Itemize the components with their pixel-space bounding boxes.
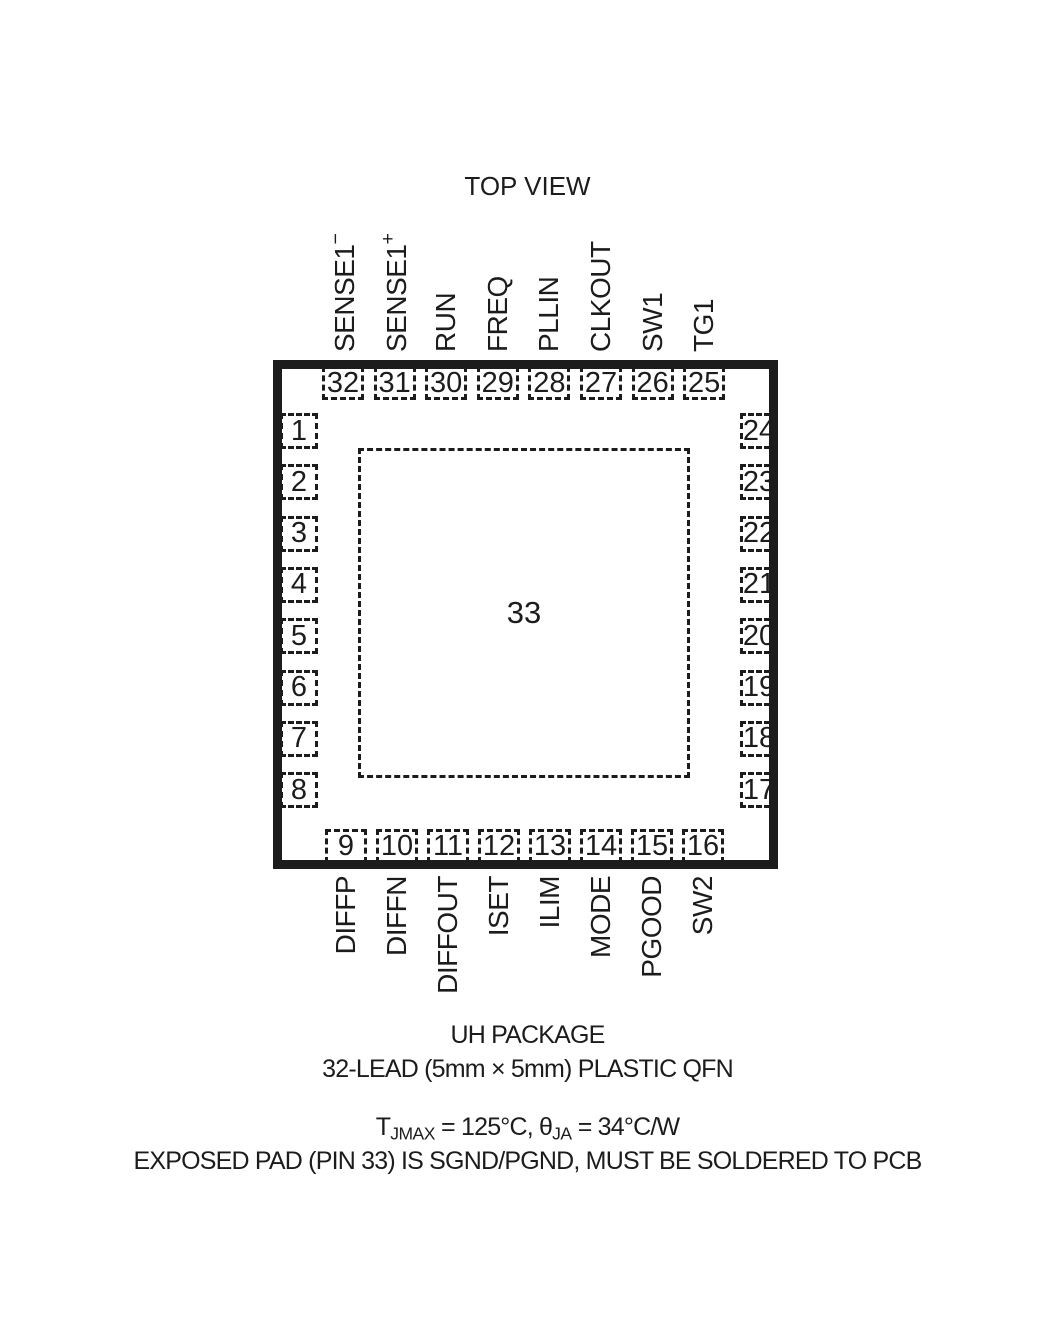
pin-number: 16 bbox=[687, 832, 719, 861]
pin-number: 30 bbox=[430, 369, 462, 398]
pin-pad-1: 1 bbox=[280, 413, 318, 449]
pin-number: 19 bbox=[743, 673, 775, 702]
pin-pad-10: 10 bbox=[376, 829, 418, 863]
pin-label-wrap-30: RUN bbox=[430, 293, 462, 352]
pin-pad-30: 30 bbox=[425, 366, 467, 400]
pin-number: 17 bbox=[743, 776, 775, 805]
pin-pad-27: 27 bbox=[580, 366, 622, 400]
pin-pad-15: 15 bbox=[631, 829, 673, 863]
pin-label-wrap-14: MODE bbox=[585, 876, 617, 958]
pin-label-28: PLLIN bbox=[533, 277, 565, 352]
pin-label-wrap-9: DIFFP bbox=[330, 876, 362, 954]
pin-pad-29: 29 bbox=[477, 366, 519, 400]
pin-label-12: ISET bbox=[483, 876, 515, 936]
pin-label-30: RUN bbox=[430, 293, 462, 352]
pin-label-26: SW1 bbox=[637, 293, 669, 352]
pin-label-11: DIFFOUT bbox=[432, 876, 464, 994]
pin-label-25: TG1 bbox=[688, 299, 720, 352]
pin-number: 11 bbox=[433, 832, 463, 861]
pin-pad-6: 6 bbox=[280, 670, 318, 706]
pin-number: 20 bbox=[743, 622, 775, 651]
pin-label-16: SW2 bbox=[687, 876, 719, 935]
pin-number: 21 bbox=[743, 570, 775, 599]
pin-label-31: SENSE1+ bbox=[377, 234, 413, 352]
pin-pad-25: 25 bbox=[683, 366, 725, 400]
pin-number: 29 bbox=[482, 369, 514, 398]
pin-number: 8 bbox=[291, 776, 307, 805]
pin-label-15: PGOOD bbox=[636, 876, 668, 978]
pin-label-29: FREQ bbox=[482, 276, 514, 352]
pin-number: 25 bbox=[688, 369, 720, 398]
pin-label-wrap-10: DIFFN bbox=[381, 876, 413, 956]
pin-label-9: DIFFP bbox=[330, 876, 362, 954]
pin-number: 27 bbox=[585, 369, 617, 398]
pin-label-32: SENSE1− bbox=[325, 234, 361, 352]
pin-number: 26 bbox=[636, 369, 668, 398]
pin-pad-19: 19 bbox=[740, 670, 778, 706]
pin-number: 4 bbox=[291, 570, 307, 599]
pin-label-10: DIFFN bbox=[381, 876, 413, 956]
pin-pad-13: 13 bbox=[529, 829, 571, 863]
pin-pad-11: 11 bbox=[427, 829, 469, 863]
pin-pad-22: 22 bbox=[740, 516, 778, 552]
pin-number: 23 bbox=[743, 468, 775, 497]
pin-number: 12 bbox=[483, 832, 515, 861]
pin-pad-18: 18 bbox=[740, 721, 778, 757]
pin-label-14: MODE bbox=[585, 876, 617, 958]
package-description: 32-LEAD (5mm × 5mm) PLASTIC QFN bbox=[0, 1054, 1055, 1084]
pin-pad-32: 32 bbox=[322, 366, 364, 400]
pin-label-27: CLKOUT bbox=[585, 241, 617, 352]
pin-pad-28: 28 bbox=[528, 366, 570, 400]
pin-pad-14: 14 bbox=[580, 829, 622, 863]
pin-number: 1 bbox=[291, 417, 307, 446]
pin-number: 18 bbox=[743, 724, 775, 753]
pin-label-wrap-29: FREQ bbox=[482, 276, 514, 352]
pin-pad-24: 24 bbox=[740, 413, 778, 449]
thermal-note: TJMAX = 125°C, θJA = 34°C/W bbox=[0, 1112, 1055, 1144]
pin-pad-23: 23 bbox=[740, 464, 778, 500]
pin-pad-26: 26 bbox=[632, 366, 674, 400]
exposed-pad-note: EXPOSED PAD (PIN 33) IS SGND/PGND, MUST … bbox=[0, 1146, 1055, 1176]
pin-label-wrap-28: PLLIN bbox=[533, 277, 565, 352]
top-view-label: TOP VIEW bbox=[0, 171, 1055, 202]
pin-number: 28 bbox=[533, 369, 565, 398]
exposed-pad-number: 33 bbox=[507, 595, 541, 631]
pin-pad-17: 17 bbox=[740, 772, 778, 808]
pin-pad-20: 20 bbox=[740, 618, 778, 654]
pin-pad-7: 7 bbox=[280, 721, 318, 757]
pin-number: 13 bbox=[534, 832, 566, 861]
pin-number: 14 bbox=[585, 832, 617, 861]
pin-number: 9 bbox=[338, 832, 354, 861]
pin-label-wrap-15: PGOOD bbox=[636, 876, 668, 978]
pin-pad-3: 3 bbox=[280, 516, 318, 552]
pin-pad-21: 21 bbox=[740, 567, 778, 603]
pin-label-wrap-12: ISET bbox=[483, 876, 515, 936]
exposed-pad: 33 bbox=[358, 448, 690, 778]
pin-label-wrap-31: SENSE1+ bbox=[377, 234, 413, 352]
pin-label-wrap-32: SENSE1− bbox=[325, 234, 361, 352]
pin-number: 2 bbox=[291, 468, 307, 497]
pin-number: 31 bbox=[378, 369, 410, 398]
pin-label-wrap-26: SW1 bbox=[637, 293, 669, 352]
pin-number: 15 bbox=[636, 832, 668, 861]
pin-pad-8: 8 bbox=[280, 772, 318, 808]
qfn-pinout-diagram: TOP VIEW 33 UH PACKAGE 32-LEAD (5mm × 5m… bbox=[0, 0, 1055, 1337]
pin-number: 22 bbox=[743, 519, 775, 548]
pin-label-wrap-16: SW2 bbox=[687, 876, 719, 935]
pin-label-wrap-27: CLKOUT bbox=[585, 241, 617, 352]
pin-pad-31: 31 bbox=[374, 366, 416, 400]
pin-pad-16: 16 bbox=[682, 829, 724, 863]
pin-pad-2: 2 bbox=[280, 464, 318, 500]
pin-label-13: ILIM bbox=[534, 876, 566, 928]
pin-label-wrap-25: TG1 bbox=[688, 299, 720, 352]
pin-number: 7 bbox=[291, 724, 307, 753]
pin-pad-12: 12 bbox=[478, 829, 520, 863]
pin-number: 32 bbox=[327, 369, 359, 398]
pin-pad-9: 9 bbox=[325, 829, 367, 863]
pin-number: 3 bbox=[291, 519, 307, 548]
pin-number: 5 bbox=[291, 622, 307, 651]
pin-number: 10 bbox=[381, 832, 413, 861]
pin-label-wrap-11: DIFFOUT bbox=[432, 876, 464, 994]
pin-pad-4: 4 bbox=[280, 567, 318, 603]
package-name: UH PACKAGE bbox=[0, 1020, 1055, 1050]
pin-label-wrap-13: ILIM bbox=[534, 876, 566, 928]
pin-number: 6 bbox=[291, 673, 307, 702]
pin-number: 24 bbox=[743, 417, 775, 446]
pin-pad-5: 5 bbox=[280, 618, 318, 654]
